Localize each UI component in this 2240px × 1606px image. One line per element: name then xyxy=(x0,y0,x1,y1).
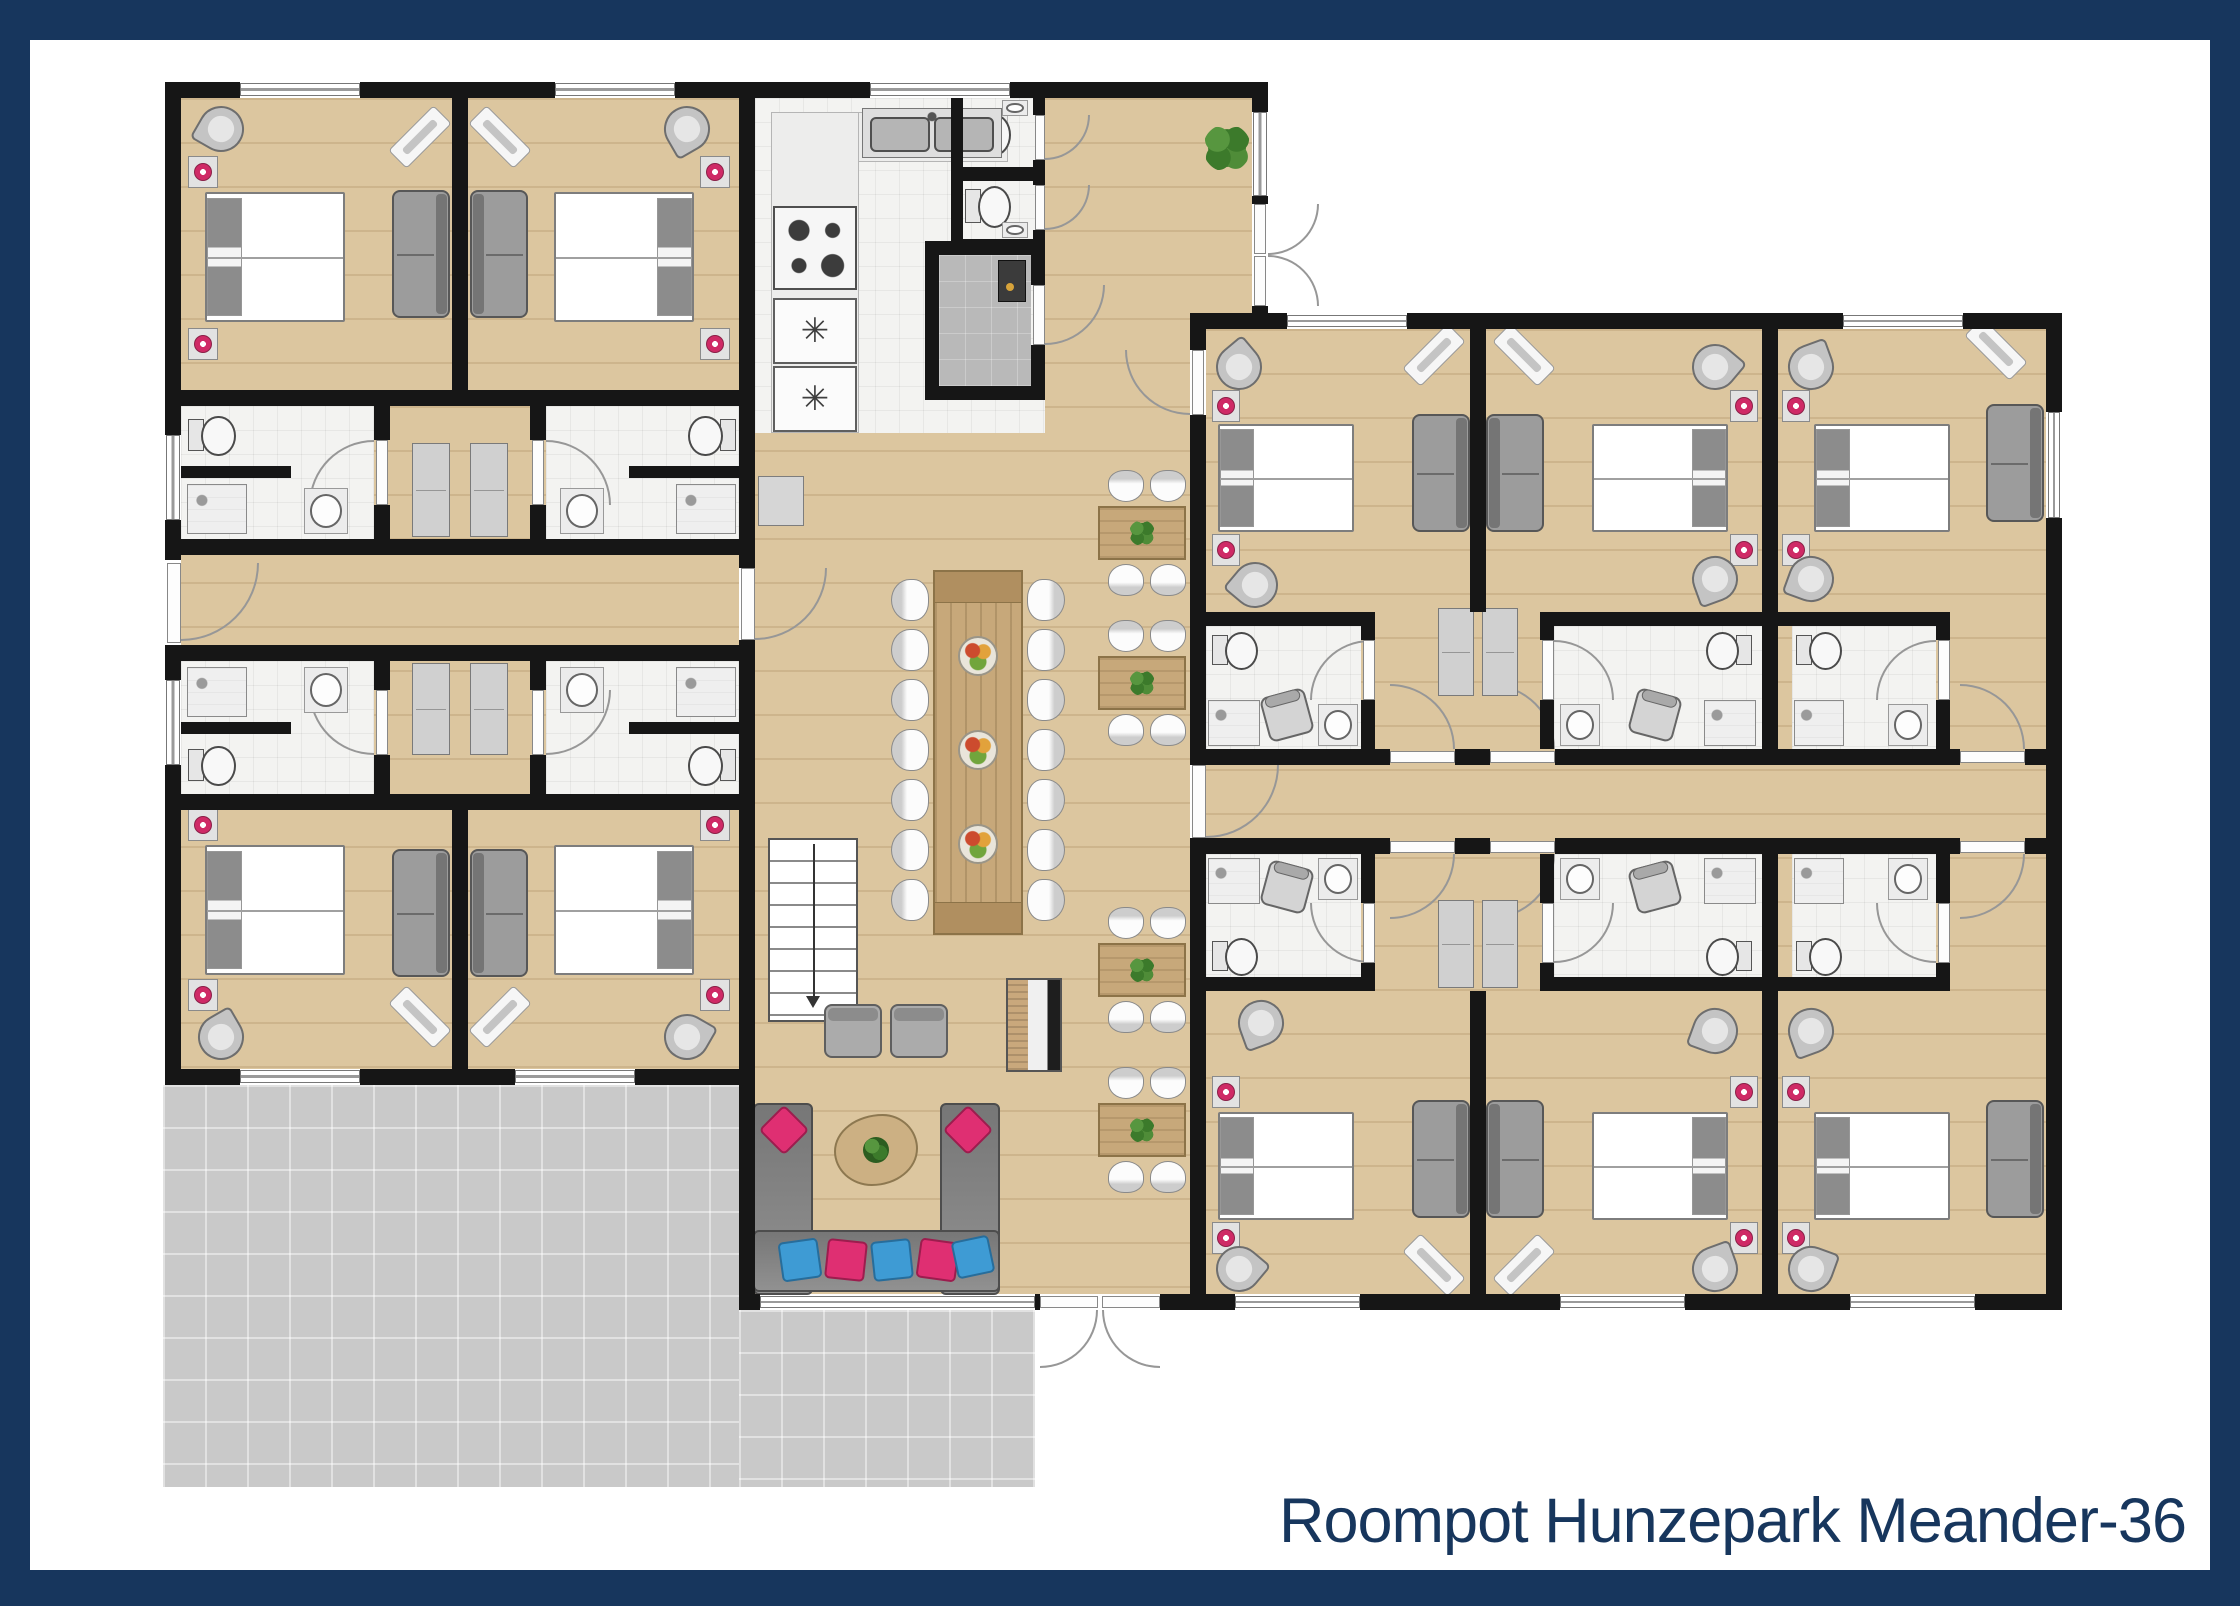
wall xyxy=(1455,749,1490,765)
wall xyxy=(1361,854,1375,903)
wall xyxy=(1010,82,1268,98)
dining-chair xyxy=(1150,564,1186,596)
wall xyxy=(530,505,546,539)
double-bed xyxy=(1814,424,1950,532)
washbasin xyxy=(304,667,348,713)
wall xyxy=(1033,98,1045,115)
door-leaf xyxy=(1035,115,1045,160)
wall xyxy=(925,386,1045,400)
floorplan xyxy=(0,0,2240,1606)
frame-border-left xyxy=(0,0,30,1606)
wall xyxy=(2046,313,2062,412)
door-leaf xyxy=(1102,1296,1160,1308)
window xyxy=(240,1070,360,1083)
door-leaf xyxy=(376,440,388,505)
wall xyxy=(1407,313,1843,329)
wall xyxy=(739,1294,760,1310)
dining-chair xyxy=(1150,714,1186,746)
wall xyxy=(1361,626,1375,640)
toilet xyxy=(188,744,236,784)
wall xyxy=(1206,838,1390,854)
wall xyxy=(629,722,739,734)
loveseat-sofa xyxy=(1412,1100,1470,1218)
wall xyxy=(1540,854,1554,903)
dining-chair xyxy=(1108,714,1144,746)
frame-border-top xyxy=(0,0,2240,40)
wall xyxy=(1470,991,1486,1294)
dining-chair xyxy=(1027,629,1065,671)
double-bed xyxy=(205,845,345,975)
fridge-freezer xyxy=(773,366,857,432)
window xyxy=(1843,315,1963,327)
dining-chair xyxy=(1108,1001,1144,1033)
washbasin xyxy=(560,667,604,713)
wall xyxy=(181,722,291,734)
shower xyxy=(676,484,736,534)
wall xyxy=(360,82,555,98)
window xyxy=(515,1070,635,1083)
wall xyxy=(530,661,546,690)
terrace-floor xyxy=(739,1310,1035,1487)
shower xyxy=(676,667,736,717)
wall xyxy=(1190,329,1206,350)
loveseat-sofa xyxy=(470,190,528,318)
door-arc xyxy=(1040,1310,1098,1368)
wall xyxy=(374,406,390,440)
wardrobe xyxy=(470,663,508,755)
plant xyxy=(1203,124,1251,172)
window xyxy=(166,435,180,520)
dining-chair xyxy=(1108,620,1144,652)
window xyxy=(870,83,1010,96)
plant xyxy=(1129,670,1155,696)
window xyxy=(1850,1296,1975,1308)
wall xyxy=(530,755,546,794)
wall xyxy=(2025,838,2046,854)
door-leaf xyxy=(1960,751,2025,763)
wall xyxy=(1540,612,1778,626)
wall xyxy=(1252,306,1268,313)
wall xyxy=(181,645,739,661)
nightstand-with-lamp xyxy=(188,328,218,360)
shower xyxy=(1794,700,1844,746)
wall xyxy=(1936,963,1950,977)
double-bed xyxy=(554,192,694,322)
shower xyxy=(1704,858,1756,904)
wall xyxy=(1936,700,1950,749)
wall xyxy=(1685,1294,1850,1310)
wall xyxy=(1252,196,1268,204)
dining-chair xyxy=(1108,1161,1144,1193)
cushion xyxy=(870,1238,914,1282)
wall xyxy=(165,645,181,680)
nightstand-with-lamp xyxy=(1212,1076,1240,1108)
double-bed xyxy=(205,192,345,322)
dining-chair xyxy=(1150,1001,1186,1033)
door-leaf xyxy=(1490,751,1555,763)
wall xyxy=(739,1069,755,1294)
nightstand-with-lamp xyxy=(1782,390,1810,422)
door-leaf xyxy=(1254,256,1266,306)
door-leaf xyxy=(532,690,544,755)
double-bed xyxy=(1592,1112,1728,1220)
washbasin xyxy=(1002,222,1028,238)
shower xyxy=(1704,700,1756,746)
shower xyxy=(1794,858,1844,904)
staircase xyxy=(768,838,858,1022)
wardrobe xyxy=(1482,900,1518,988)
armchair xyxy=(824,1004,882,1058)
wall xyxy=(1252,98,1268,112)
door-leaf xyxy=(1490,841,1555,853)
door-leaf xyxy=(1960,841,2025,853)
dining-chair xyxy=(1027,729,1065,771)
armchair xyxy=(890,1004,948,1058)
loveseat-sofa xyxy=(1986,1100,2044,1218)
wall xyxy=(1762,991,1778,1294)
nightstand-with-lamp xyxy=(188,979,218,1011)
wall xyxy=(1361,963,1375,977)
wall xyxy=(530,406,546,440)
wall xyxy=(739,82,755,568)
door-leaf xyxy=(1192,765,1206,838)
nightstand-with-lamp xyxy=(1730,390,1758,422)
wall xyxy=(1936,854,1950,903)
dining-chair xyxy=(1108,907,1144,939)
wall xyxy=(1975,1294,2062,1310)
wall xyxy=(165,82,181,435)
wall xyxy=(374,661,390,690)
nightstand-with-lamp xyxy=(1212,390,1240,422)
washbasin xyxy=(1560,704,1600,746)
wall xyxy=(1470,329,1486,612)
wall xyxy=(1360,1294,1560,1310)
nightstand-with-lamp xyxy=(700,328,730,360)
dining-chair xyxy=(1150,1161,1186,1193)
floorplan-page: Roompot Hunzepark Meander-36 xyxy=(0,0,2240,1606)
cushion xyxy=(777,1237,822,1282)
nightstand-with-lamp xyxy=(1782,1076,1810,1108)
loveseat-sofa xyxy=(1486,1100,1544,1218)
wall xyxy=(635,1069,755,1085)
window xyxy=(1560,1296,1685,1308)
window xyxy=(240,83,360,96)
plant xyxy=(1129,1117,1155,1143)
door-leaf xyxy=(1390,841,1455,853)
nightstand-with-lamp xyxy=(700,809,730,841)
window xyxy=(760,1296,1035,1308)
nightstand-with-lamp xyxy=(188,156,218,188)
wall xyxy=(1190,415,1206,765)
door-leaf xyxy=(1938,903,1950,963)
dining-chair xyxy=(1150,470,1186,502)
double-bed xyxy=(554,845,694,975)
loveseat-sofa xyxy=(1986,404,2044,522)
wall xyxy=(374,755,390,794)
dining-chair xyxy=(1027,679,1065,721)
stove xyxy=(773,206,857,290)
washbasin xyxy=(304,488,348,534)
washbasin xyxy=(1560,858,1600,900)
wall xyxy=(755,82,870,98)
fruit-bowl xyxy=(958,824,998,864)
wall xyxy=(1936,626,1950,640)
dining-chair xyxy=(891,579,929,621)
plan-title: Roompot Hunzepark Meander-36 xyxy=(1279,1487,2186,1556)
dining-chair xyxy=(1108,470,1144,502)
wall xyxy=(165,1069,240,1085)
door-leaf xyxy=(1033,285,1045,345)
wall xyxy=(1190,1294,1235,1310)
nightstand-with-lamp xyxy=(1212,534,1240,566)
dining-chair xyxy=(891,729,929,771)
loveseat-sofa xyxy=(1412,414,1470,532)
washbasin xyxy=(1002,100,1028,116)
wall xyxy=(629,466,739,478)
wall xyxy=(165,520,181,560)
wall xyxy=(925,255,939,386)
door-leaf xyxy=(167,563,181,643)
toilet xyxy=(688,744,736,784)
door-leaf xyxy=(1035,185,1045,230)
dining-chair xyxy=(1027,579,1065,621)
frame-border-right xyxy=(2210,0,2240,1606)
wall xyxy=(1206,612,1375,626)
wall xyxy=(1778,977,1950,991)
wall xyxy=(1190,838,1206,1294)
cushion xyxy=(950,1234,995,1279)
toilet xyxy=(1706,936,1752,974)
dining-chair xyxy=(1150,620,1186,652)
dining-chair xyxy=(1150,907,1186,939)
window xyxy=(555,83,675,96)
frame-border-bottom xyxy=(0,1570,2240,1606)
washbasin xyxy=(560,488,604,534)
wall xyxy=(1206,977,1375,991)
nightstand-with-lamp xyxy=(1730,534,1758,566)
door-leaf xyxy=(1040,1296,1098,1308)
boiler xyxy=(998,260,1026,302)
shower xyxy=(187,667,247,717)
toilet xyxy=(1212,630,1258,668)
dining-chair xyxy=(891,779,929,821)
door-leaf xyxy=(1363,903,1375,963)
toilet xyxy=(688,414,736,454)
wardrobe xyxy=(1482,608,1518,696)
door-leaf xyxy=(1542,903,1554,963)
wall xyxy=(181,539,739,555)
wall xyxy=(165,765,181,1085)
wall xyxy=(1762,329,1778,612)
wall xyxy=(1555,838,1960,854)
wall xyxy=(181,390,739,406)
double-bed xyxy=(1592,424,1728,532)
dining-chair xyxy=(1108,1067,1144,1099)
door-leaf xyxy=(1363,640,1375,700)
dining-chair xyxy=(891,679,929,721)
dining-chair xyxy=(891,829,929,871)
plant xyxy=(1129,520,1155,546)
dining-chair xyxy=(1108,564,1144,596)
wall xyxy=(1762,612,1778,749)
door-leaf xyxy=(376,690,388,755)
loveseat-sofa xyxy=(470,849,528,977)
shower xyxy=(1208,858,1260,904)
toilet xyxy=(188,414,236,454)
wall xyxy=(2025,749,2046,765)
nightstand-with-lamp xyxy=(1730,1222,1758,1254)
wall xyxy=(374,505,390,539)
wardrobe xyxy=(412,663,450,755)
shower xyxy=(187,484,247,534)
wall xyxy=(1031,255,1045,285)
fridge-freezer xyxy=(773,298,857,364)
wall xyxy=(1540,700,1554,749)
window xyxy=(2048,412,2060,518)
wall xyxy=(181,794,739,810)
cabinet xyxy=(758,476,804,526)
loveseat-sofa xyxy=(392,190,450,318)
shower xyxy=(1208,700,1260,746)
wall xyxy=(452,805,468,1069)
wall xyxy=(360,1069,515,1085)
double-bed xyxy=(1814,1112,1950,1220)
door-leaf xyxy=(1192,350,1204,415)
wall xyxy=(1540,626,1554,640)
toilet xyxy=(1796,630,1842,668)
washbasin xyxy=(1888,858,1928,900)
wall xyxy=(1361,700,1375,749)
door-arc xyxy=(1268,204,1319,255)
fruit-bowl xyxy=(958,730,998,770)
washbasin xyxy=(1318,858,1358,900)
double-bed xyxy=(1218,424,1354,532)
dining-chair xyxy=(891,629,929,671)
toilet xyxy=(1706,630,1752,668)
wall xyxy=(1778,612,1950,626)
wall xyxy=(1190,313,1287,329)
nightstand-with-lamp xyxy=(1730,1076,1758,1108)
door-leaf xyxy=(1938,640,1950,700)
window xyxy=(1253,112,1267,196)
double-bed xyxy=(1218,1112,1354,1220)
door-leaf xyxy=(1390,751,1455,763)
wall xyxy=(1555,749,1960,765)
wall xyxy=(1762,854,1778,991)
wall xyxy=(739,640,755,1069)
wall xyxy=(2046,518,2062,1310)
toilet xyxy=(1212,936,1258,974)
wall xyxy=(1206,749,1390,765)
toilet xyxy=(1796,936,1842,974)
toilet xyxy=(965,184,1011,226)
wardrobe xyxy=(470,443,508,537)
dining-chair xyxy=(1027,829,1065,871)
window xyxy=(166,680,180,765)
door-leaf xyxy=(532,440,544,505)
nightstand-with-lamp xyxy=(188,809,218,841)
door-arc xyxy=(1268,255,1319,306)
dining-chair xyxy=(1027,779,1065,821)
door-arc xyxy=(1102,1310,1160,1368)
nightstand-with-lamp xyxy=(700,156,730,188)
wall xyxy=(925,241,1045,255)
wall xyxy=(452,98,468,390)
wall xyxy=(181,466,291,478)
wall xyxy=(1033,160,1045,185)
wall xyxy=(1455,838,1490,854)
door-leaf xyxy=(1542,640,1554,700)
dining-chair xyxy=(891,879,929,921)
fruit-bowl xyxy=(958,636,998,676)
wall xyxy=(1540,977,1778,991)
plant xyxy=(1129,957,1155,983)
wall xyxy=(1031,345,1045,386)
kitchen-sink xyxy=(862,108,1002,158)
cushion xyxy=(824,1238,868,1282)
door-leaf xyxy=(1254,204,1266,254)
wall xyxy=(951,167,1045,181)
washbasin xyxy=(1318,704,1358,746)
wardrobe xyxy=(412,443,450,537)
wardrobe xyxy=(1438,900,1474,988)
terrace-floor xyxy=(163,1085,739,1487)
washbasin xyxy=(1888,704,1928,746)
door-leaf xyxy=(741,568,755,640)
dining-chair xyxy=(1027,879,1065,921)
wardrobe xyxy=(1438,608,1474,696)
loveseat-sofa xyxy=(1486,414,1544,532)
tv-cabinet xyxy=(1006,978,1062,1072)
wall xyxy=(1540,963,1554,977)
window xyxy=(1287,315,1407,327)
window xyxy=(1235,1296,1360,1308)
nightstand-with-lamp xyxy=(700,979,730,1011)
loveseat-sofa xyxy=(392,849,450,977)
dining-chair xyxy=(1150,1067,1186,1099)
